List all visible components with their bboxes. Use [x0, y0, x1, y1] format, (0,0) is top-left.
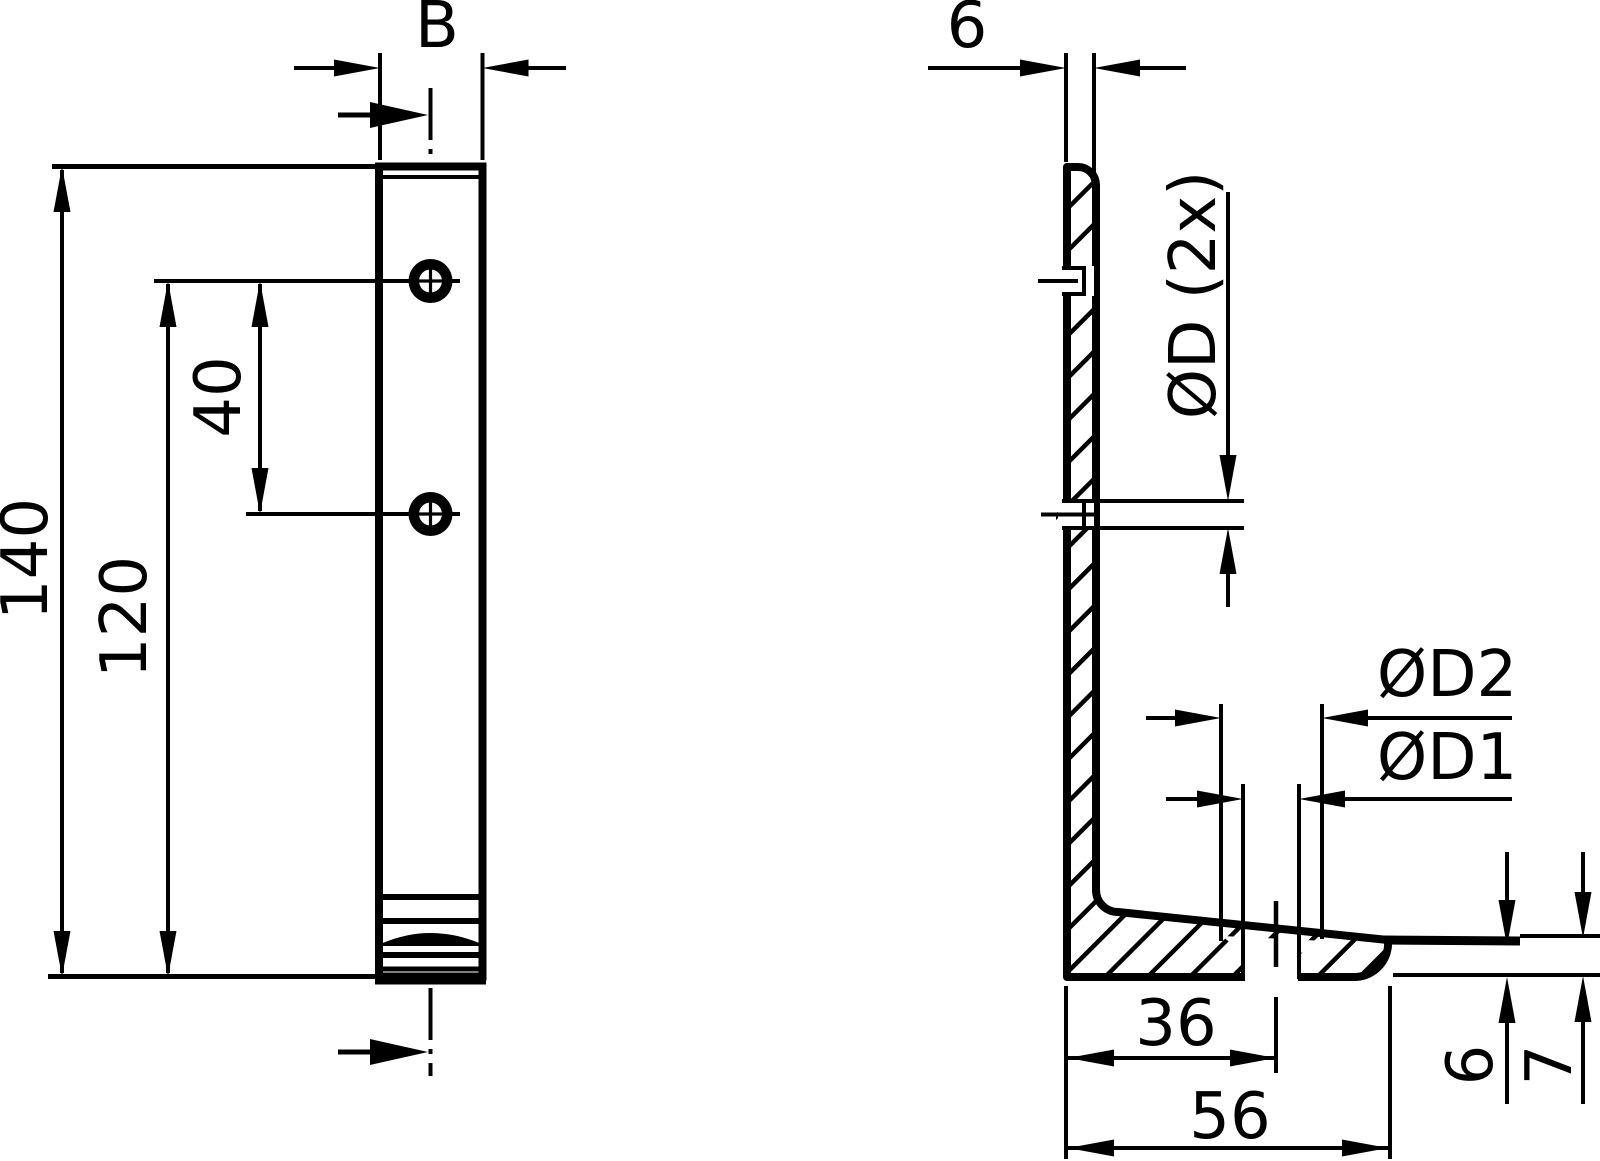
arrowhead-right: [1175, 710, 1221, 727]
arrowhead-right: [1020, 60, 1066, 77]
arrowhead-up: [54, 167, 71, 213]
arrowhead-up: [252, 281, 269, 327]
dim-label-40: 40: [182, 356, 256, 437]
dim-tip-thickness: 6: [1434, 852, 1516, 1104]
arrowhead-up: [1499, 977, 1516, 1023]
arrowhead-up: [160, 281, 177, 327]
section-arrowhead: [370, 102, 428, 128]
arrowhead-down: [160, 931, 177, 977]
dim-120: 120: [88, 281, 177, 977]
wall-hole-bottom-section: [1041, 499, 1244, 530]
arrowhead-left: [483, 60, 529, 77]
dim-label-56: 56: [1189, 1080, 1270, 1154]
dim-wall-holes-diameter: ØD (2x): [1157, 171, 1237, 607]
dim-label-140: 140: [0, 498, 63, 620]
dim-wall-thickness: 6: [928, 0, 1186, 182]
section-arrow-top: [338, 102, 428, 128]
arrowhead-left: [1068, 1050, 1114, 1067]
arrowhead-right: [1342, 1140, 1388, 1157]
arrowhead-down: [252, 468, 269, 514]
arrowhead-right: [1230, 1050, 1276, 1067]
dim-label-hole-diameter-d-2x: ØD (2x): [1157, 171, 1231, 420]
front-view: 140 120 40 B: [0, 0, 566, 1076]
dim-label-flange-thickness-7: 7: [1513, 1045, 1587, 1086]
object-line: [1384, 940, 1520, 941]
dim-label-width-B: B: [415, 0, 459, 63]
dim-label-120: 120: [88, 556, 162, 678]
wall-hole-top-section: [1038, 266, 1094, 296]
section-view: 6 ØD (2x) ØD2 ØD1: [928, 0, 1600, 1159]
dim-36: 36: [1068, 987, 1276, 1067]
section-arrow-bottom: [338, 1039, 428, 1065]
dim-40: 40: [182, 281, 269, 514]
flange-hole-gap: [1245, 963, 1298, 989]
dim-label-36: 36: [1135, 987, 1216, 1061]
dim-label-tip-thickness-6: 6: [1434, 1045, 1508, 1086]
dim-label-wall-thickness-6: 6: [947, 0, 988, 63]
bracket-drawing-canvas: 140 120 40 B: [0, 0, 1600, 1161]
dim-56: 56: [1066, 986, 1390, 1159]
arrowhead-down: [1220, 455, 1237, 501]
arrowhead-left: [1068, 1140, 1114, 1157]
dim-flange-thickness: 7: [1513, 852, 1592, 1104]
arrowhead-left: [1094, 60, 1140, 77]
technical-drawing-page: 140 120 40 B: [0, 0, 1600, 1161]
dim-140: 140: [0, 167, 71, 977]
arrowhead-down: [1575, 892, 1592, 938]
arrowhead-down: [54, 931, 71, 977]
arrowhead-up: [1220, 528, 1237, 574]
arrowhead-left: [1322, 710, 1368, 727]
arrowhead-right: [334, 60, 380, 77]
dim-label-d1: ØD1: [1377, 721, 1517, 795]
section-arrowhead: [370, 1039, 428, 1065]
arrowhead-up: [1575, 976, 1592, 1022]
dim-label-d2: ØD2: [1377, 638, 1517, 712]
